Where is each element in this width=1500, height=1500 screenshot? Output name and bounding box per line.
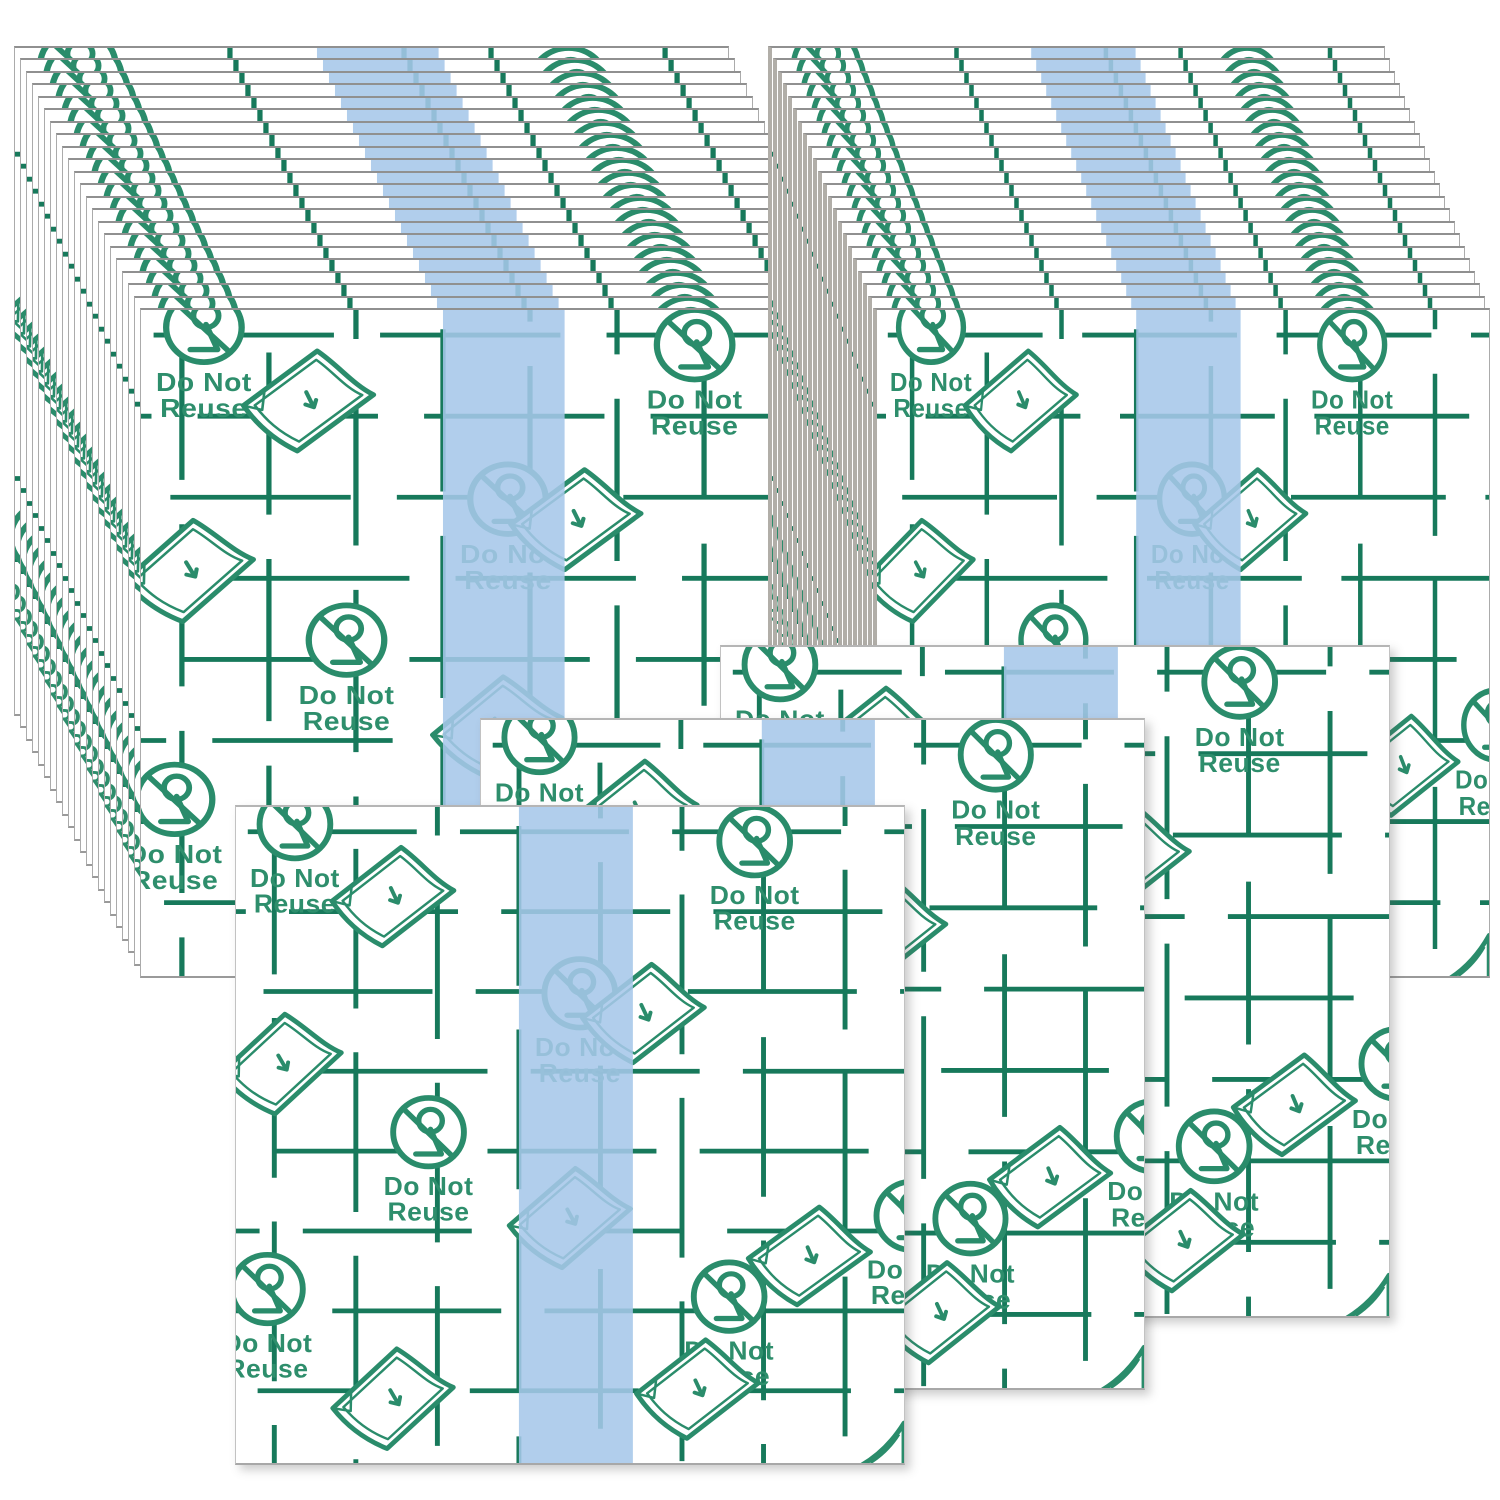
do-not-reuse-icon	[260, 807, 331, 858]
do-not-reuse-icon	[393, 1098, 464, 1166]
do-not-reuse-label: Reuse	[1459, 792, 1489, 821]
do-not-reuse-icon	[1179, 1111, 1250, 1181]
do-not-reuse-icon	[719, 807, 790, 875]
do-not-reuse-label: Reuse	[1315, 412, 1390, 441]
do-not-reuse-icon	[236, 1255, 303, 1323]
curled-corner-mark-icon	[1099, 1347, 1144, 1388]
do-not-reuse-label: Reuse	[714, 906, 796, 936]
do-not-reuse-label: Do Not	[1455, 766, 1489, 795]
do-not-reuse-label: Do Not	[890, 368, 972, 397]
sheet-print-pattern: Do Not Reuse Do Not Reuse Do Not Reuse	[236, 807, 904, 1463]
do-not-reuse-icon	[745, 647, 816, 699]
folded-corner-icon	[236, 1003, 345, 1123]
do-not-reuse-label: Reuse	[254, 889, 336, 919]
curled-corner-mark-icon	[859, 1423, 904, 1463]
do-not-reuse-icon	[309, 605, 384, 674]
do-not-reuse-label: Reuse	[236, 1354, 308, 1384]
do-not-reuse-label: Reuse	[871, 1281, 904, 1311]
do-not-reuse-icon	[899, 310, 964, 362]
do-not-reuse-label: Reuse	[1199, 748, 1281, 778]
do-not-reuse-icon	[141, 765, 212, 834]
do-not-reuse-icon	[657, 310, 732, 379]
do-not-reuse-icon	[1361, 1029, 1389, 1099]
do-not-reuse-icon	[876, 1182, 904, 1250]
do-not-reuse-icon	[961, 720, 1031, 790]
do-not-reuse-label: Reuse	[1356, 1130, 1389, 1160]
do-not-reuse-label: Reuse	[388, 1197, 470, 1227]
do-not-reuse-label: Do Not	[1311, 386, 1393, 415]
folded-corner-icon	[141, 509, 257, 631]
product-photo-scene: Do Not Reuse Do Not Reuse Do Not Reuse	[0, 0, 1500, 1500]
do-not-reuse-icon	[1464, 690, 1489, 759]
do-not-reuse-icon	[694, 1262, 765, 1330]
do-not-reuse-label: Reuse	[1111, 1202, 1144, 1232]
do-not-reuse-icon	[1320, 310, 1385, 379]
do-not-reuse-label: Reuse	[651, 411, 739, 441]
curled-corner-mark-icon	[1344, 1275, 1389, 1316]
do-not-reuse-label: Reuse	[160, 393, 248, 423]
curled-corner-mark-icon	[1448, 935, 1489, 976]
transfer-film-sheet: Do Not Reuse Do Not Reuse Do Not Reuse	[235, 805, 905, 1465]
do-not-reuse-label: Reuse	[955, 821, 1036, 851]
do-not-reuse-icon	[1117, 1101, 1144, 1171]
folded-corner-icon	[877, 509, 977, 631]
do-not-reuse-icon	[166, 310, 241, 362]
center-stripe	[519, 807, 633, 1463]
do-not-reuse-icon	[1204, 647, 1275, 717]
do-not-reuse-icon	[935, 1184, 1005, 1254]
do-not-reuse-label: Reuse	[141, 865, 218, 895]
do-not-reuse-icon	[504, 720, 574, 772]
do-not-reuse-label: Reuse	[303, 706, 391, 736]
do-not-reuse-label: Reuse	[893, 394, 968, 423]
